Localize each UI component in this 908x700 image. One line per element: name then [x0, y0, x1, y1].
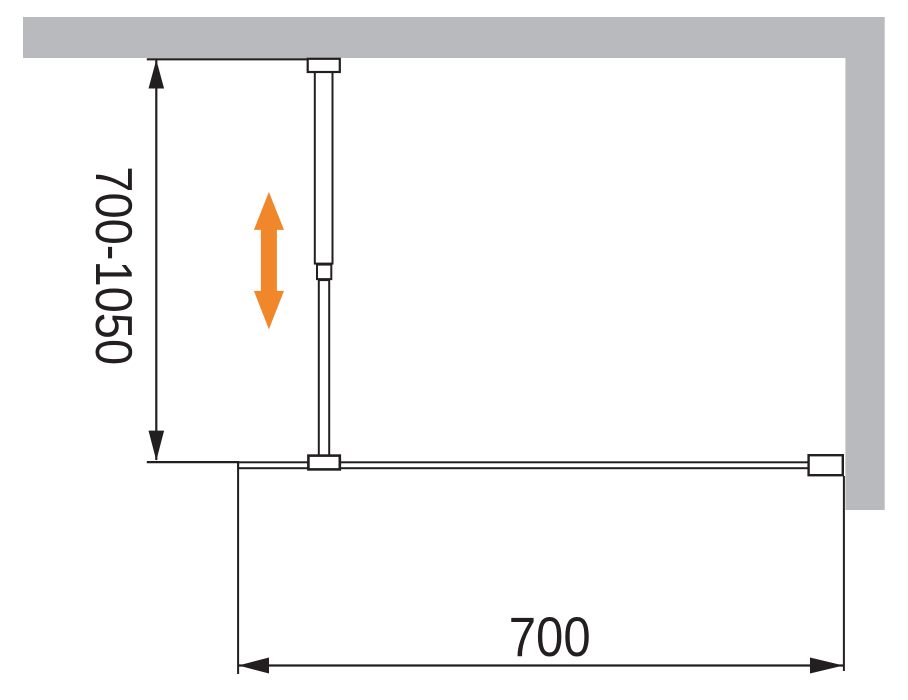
svg-text:700-1050: 700-1050 [85, 166, 144, 365]
svg-text:700: 700 [509, 607, 591, 668]
